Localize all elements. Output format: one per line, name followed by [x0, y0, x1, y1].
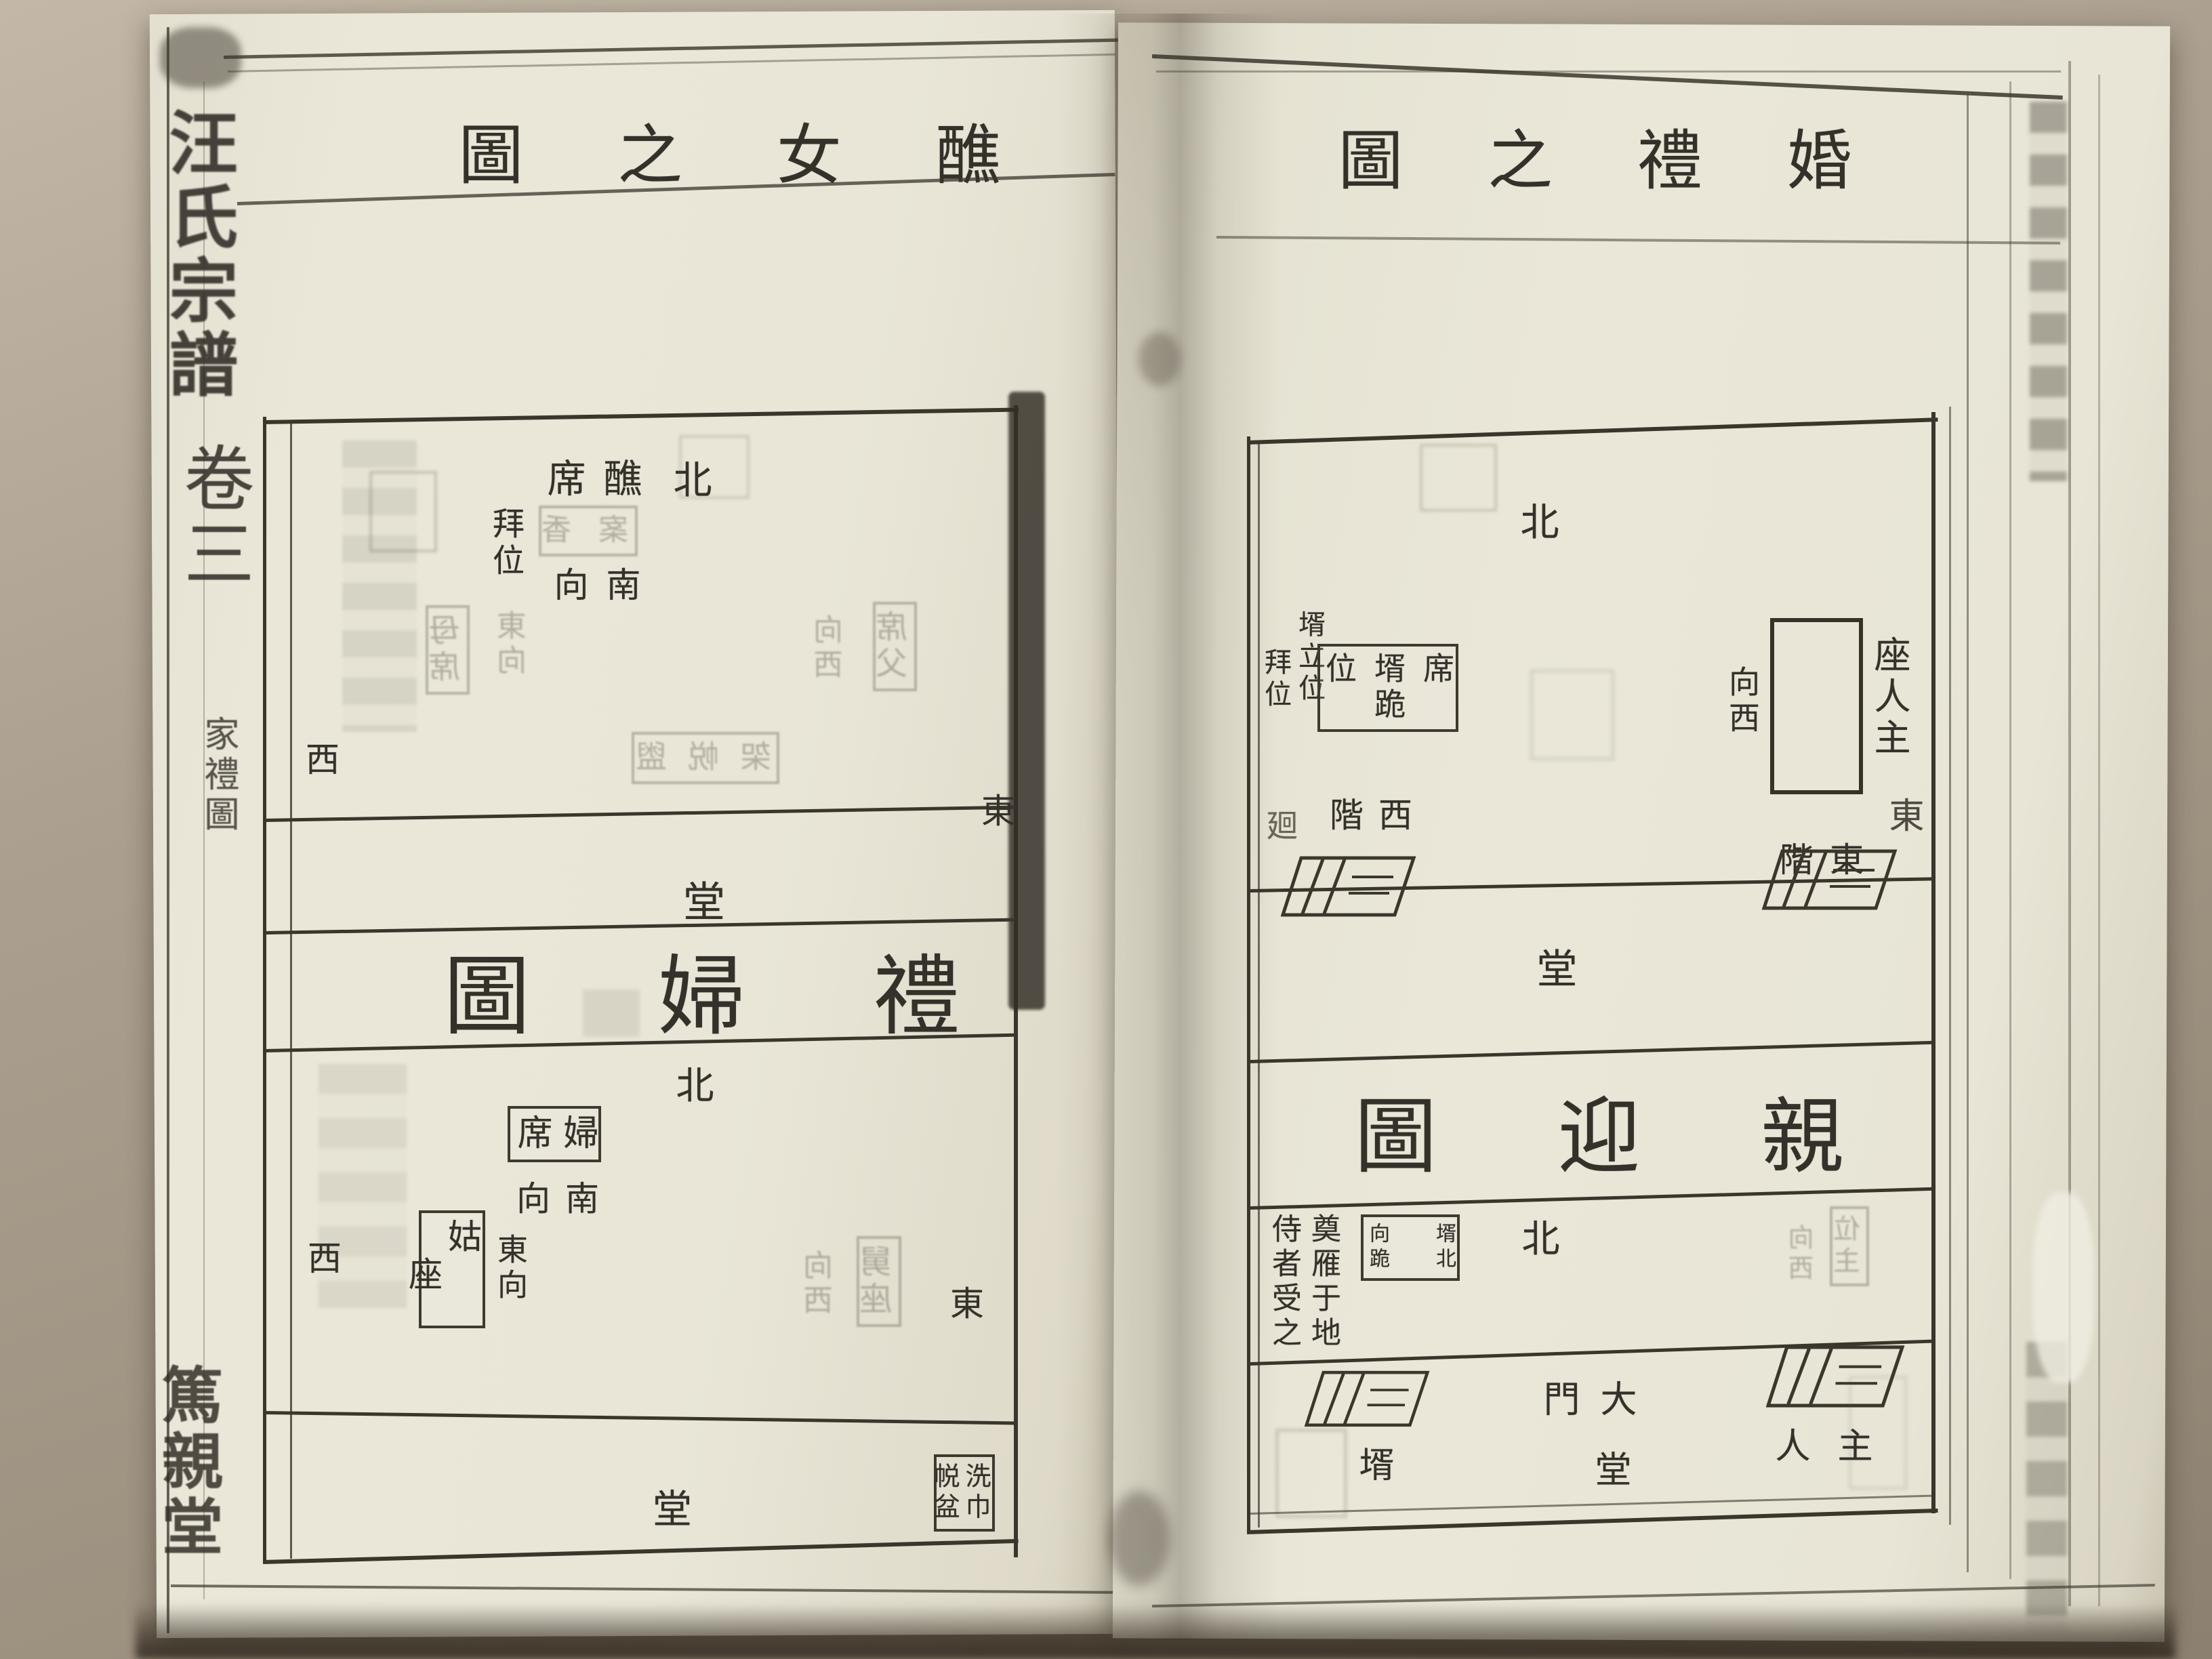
- bow-position-label: 拜位: [489, 507, 521, 580]
- north-marker-lifu: 北: [672, 1065, 710, 1108]
- north-marker-qinying-gate: 北: [1518, 1218, 1556, 1261]
- turn-mark: 廻: [1265, 809, 1296, 845]
- host-seat-box: [1770, 618, 1863, 794]
- ghost-host-position-box: 位主: [1830, 1206, 1869, 1286]
- right-frame-left-outer: [1247, 436, 1250, 1530]
- ghost-incense-table-box: 香案: [539, 506, 638, 556]
- main-gate-label: 大門: [1540, 1380, 1633, 1421]
- groom-position: 壻: [1355, 1446, 1391, 1486]
- li-fu-diagram-title: 禮婦圖: [435, 950, 951, 1042]
- ghost-mother-seat-box: 母席: [426, 605, 470, 695]
- groom-kneels-north-box: 壻北向跪: [1361, 1214, 1460, 1281]
- east-marker-jiao: 東: [979, 793, 1012, 832]
- east-gate-stairs-icon: [1766, 1343, 1905, 1410]
- ghost-father-in-law-facing-west: 向西: [806, 1250, 836, 1319]
- ghost-father-seat-box: 席父: [873, 602, 917, 691]
- spine-hall-name: 篤親堂: [156, 1364, 217, 1561]
- right-fold-line-1: [1967, 95, 1969, 1572]
- hall-marker-lifu: 堂: [649, 1488, 689, 1532]
- host-seat-facing-west: 向西: [1727, 665, 1758, 737]
- west-marker-jiao: 西: [303, 741, 337, 780]
- wash-basin-box: 洗巾帨盆: [934, 1454, 995, 1532]
- spine-volume-label: 卷三: [178, 442, 248, 592]
- west-gate-stairs-icon: [1305, 1366, 1430, 1431]
- jiao-seat-label: 醮席: [544, 458, 638, 501]
- host-position: 主人: [1771, 1427, 1869, 1467]
- faces-south-label-lifu: 南向: [514, 1181, 596, 1219]
- groom-stand-bow-position: 壻立位拜位: [1262, 610, 1323, 712]
- ghost-host-facing-west: 向西: [1790, 1224, 1816, 1285]
- right-page-title: 婚禮之圖: [1332, 126, 1846, 196]
- west-steps-label: 西階: [1327, 797, 1410, 836]
- hall-marker-qinying: 堂: [1533, 947, 1574, 993]
- spine-section-label: 家禮圖: [201, 716, 236, 836]
- qin-ying-diagram-title: 親迎圖: [1347, 1092, 1837, 1180]
- mother-in-law-seat-box: 姑座: [419, 1210, 485, 1328]
- east-stairs-icon: [1762, 848, 1898, 911]
- book-bottom-shadow: [136, 1603, 2175, 1659]
- north-marker-jiao: 北: [670, 459, 708, 503]
- west-marker-lifu: 西: [305, 1240, 339, 1279]
- right-frame-right-outer: [1949, 407, 1951, 1525]
- west-stairs-icon: [1281, 855, 1416, 918]
- faces-south-label-jiao: 南向: [550, 567, 637, 606]
- east-marker-qinying-hall: 東: [1885, 797, 1921, 837]
- groom-kneel-seat-box: 席壻跪位: [1317, 644, 1458, 732]
- left-frame-left-outer: [263, 417, 266, 1561]
- left-frame-right: [1014, 405, 1018, 1557]
- ghost-father-in-law-seat-box: 舅座: [857, 1236, 901, 1327]
- host-seat-column: 座人主: [1870, 636, 1907, 760]
- ghost-basin-stand-box: 盥帨架: [632, 732, 779, 784]
- left-frame-left-inner: [290, 422, 292, 1559]
- north-marker-qinying-hall: 北: [1517, 501, 1555, 545]
- goose-rite-text: 奠雁于地侍者受之: [1269, 1213, 1338, 1351]
- ghost-father-facing-west: 向西: [817, 614, 846, 683]
- east-marker-lifu: 東: [947, 1286, 981, 1324]
- right-frame-right: [1931, 412, 1935, 1513]
- bride-seat-box: 婦席: [508, 1106, 601, 1162]
- hall-marker-gate: 堂: [1591, 1450, 1628, 1492]
- hall-marker-upper: 堂: [679, 880, 721, 926]
- ghost-mother-facing-east: 東向: [500, 610, 530, 679]
- mother-in-law-facing-east: 東向: [495, 1233, 525, 1304]
- right-page-top-edge-2: [1156, 70, 2061, 73]
- right-foredge-line-2: [2098, 75, 2100, 1606]
- photo-of-genealogy-book: 汪氏宗譜 卷三 家禮圖 篤親堂 醮女之圖 北 醮席 香案 拜位 南向 母席 東向…: [0, 0, 2212, 1659]
- right-foredge-line-1: [2068, 61, 2071, 1606]
- spine-book-title: 汪氏宗譜: [163, 107, 232, 403]
- right-fold-line-2: [2009, 81, 2011, 1579]
